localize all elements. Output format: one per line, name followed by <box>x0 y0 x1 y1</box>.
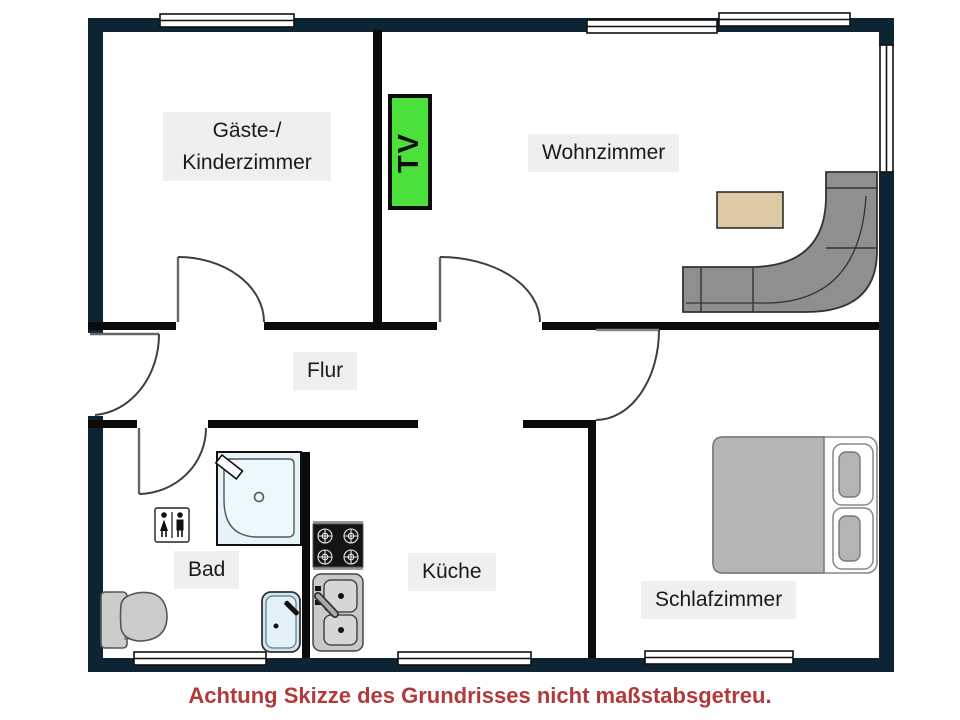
wall-kitchen-bedroom <box>588 420 596 658</box>
outer-wall-right-upper <box>879 18 894 46</box>
door-swing-icon-guest <box>178 257 264 322</box>
wall-guest-living <box>373 30 382 330</box>
tv-icon: TV <box>388 94 432 210</box>
room-label-bedroom: Schlafzimmer <box>641 581 796 619</box>
shower-icon <box>216 452 301 545</box>
wc-sign-icon <box>155 508 189 542</box>
kitchen-sink-icon <box>313 574 363 651</box>
floor-plan-drawing <box>0 0 960 720</box>
window-icon-living-left <box>587 20 717 33</box>
room-label-guest-line2: Kinderzimmer <box>182 151 312 174</box>
room-label-living: Wohnzimmer <box>528 134 679 172</box>
room-label-hall: Flur <box>293 352 357 390</box>
room-label-guest: Gäste-/ Kinderzimmer <box>163 112 331 181</box>
wall-hall-bottom-2 <box>208 420 418 428</box>
wall-hall-bottom-1 <box>88 420 137 428</box>
coffee-table-icon <box>717 192 783 228</box>
stove-icon <box>313 521 363 570</box>
outer-wall-left-upper <box>88 18 103 333</box>
scale-disclaimer-note: Achtung Skizze des Grundrisses nicht maß… <box>0 683 960 709</box>
outer-wall-right-lower <box>879 171 894 672</box>
window-icon-kitchen <box>398 652 531 665</box>
toilet-icon <box>101 592 167 648</box>
window-icon-bedroom <box>645 651 793 664</box>
tv-label: TV <box>394 131 427 172</box>
room-label-guest-line1: Gäste-/ <box>213 119 282 142</box>
room-label-kitchen: Küche <box>408 553 496 591</box>
door-swing-icon-bath <box>139 428 206 494</box>
window-icon-living-side <box>880 45 893 172</box>
wall-bath-kitchen <box>302 452 310 658</box>
door-swing-icon-bedroom <box>596 330 659 420</box>
room-label-bath: Bad <box>174 551 239 589</box>
window-icon-living-right <box>719 13 850 26</box>
wall-hall-top-3 <box>542 322 879 330</box>
wall-hall-top-2 <box>264 322 437 330</box>
window-icon-guest <box>160 14 294 27</box>
window-icon-bath <box>134 652 266 665</box>
wall-hall-top-1 <box>88 322 176 330</box>
door-swing-icon-entrance <box>90 334 159 415</box>
washbasin-icon <box>262 592 300 652</box>
floor-plan: TV Gäste-/ Kinderzimmer Wohnzimmer Flur … <box>0 0 960 720</box>
door-swing-icon-living <box>440 257 540 322</box>
wall-hall-bottom-3 <box>523 420 596 428</box>
bed-icon <box>713 437 877 573</box>
